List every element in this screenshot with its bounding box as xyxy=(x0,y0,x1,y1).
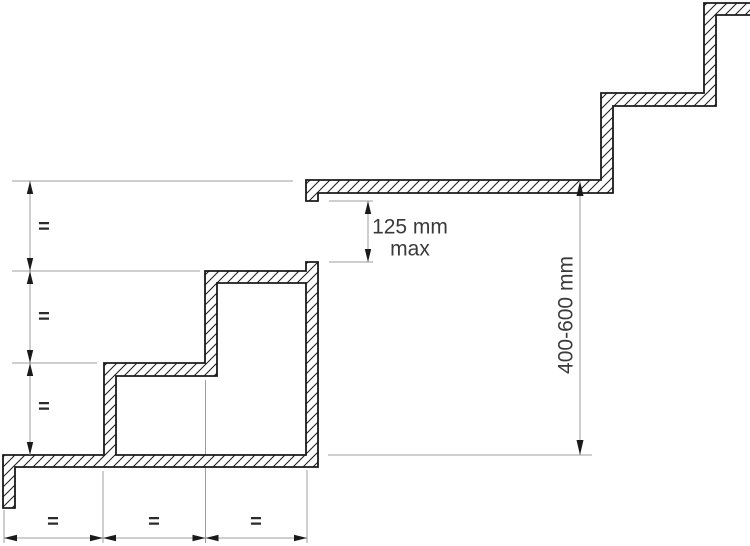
extension-lines xyxy=(4,181,592,543)
equal-going-label-2: = xyxy=(148,511,160,533)
upper-flight-section xyxy=(306,3,750,201)
riser-gap-dimension: 125 mm max xyxy=(365,201,448,262)
arrowhead xyxy=(90,535,103,541)
arrowhead xyxy=(365,249,371,262)
arrowhead xyxy=(103,535,116,541)
arrowhead xyxy=(4,535,17,541)
riser-gap-value-label: 125 mm xyxy=(372,216,448,239)
stair-profiles xyxy=(3,3,750,508)
riser-gap-max-label: max xyxy=(390,238,430,261)
equal-rise-label-3: = xyxy=(38,396,50,418)
arrowhead xyxy=(27,350,33,363)
flight-rise-dimension: 400-600 mm xyxy=(555,181,584,455)
arrowhead xyxy=(577,440,584,455)
equal-rise-label-2: = xyxy=(38,306,50,328)
arrowhead xyxy=(27,363,33,376)
stair-diagram: = = = = = = 125 mm xyxy=(0,0,750,546)
lower-flight-section xyxy=(3,262,318,508)
arrowhead xyxy=(27,271,33,284)
equal-going-label-3: = xyxy=(250,511,262,533)
arrowhead xyxy=(294,535,307,541)
equal-rise-label-1: = xyxy=(38,216,50,238)
equal-rise-dimension: = = = xyxy=(27,181,50,455)
equal-going-label-1: = xyxy=(47,511,59,533)
flight-rise-label: 400-600 mm xyxy=(555,256,578,374)
arrowhead xyxy=(206,535,219,541)
arrowhead xyxy=(27,181,33,194)
arrowhead xyxy=(365,201,371,214)
stair-diagram-canvas: = = = = = = 125 mm xyxy=(0,0,750,546)
equal-going-dimension: = = = xyxy=(4,511,307,541)
arrowhead xyxy=(27,442,33,455)
arrowhead xyxy=(27,258,33,271)
arrowhead xyxy=(193,535,206,541)
